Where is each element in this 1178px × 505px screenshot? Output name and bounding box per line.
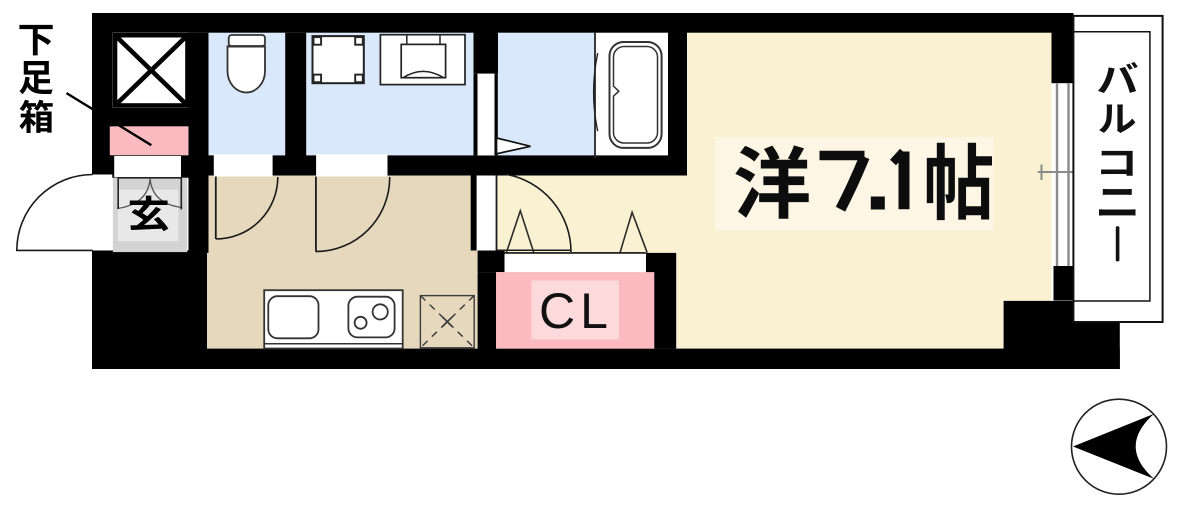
- svg-text:CL: CL: [539, 283, 613, 339]
